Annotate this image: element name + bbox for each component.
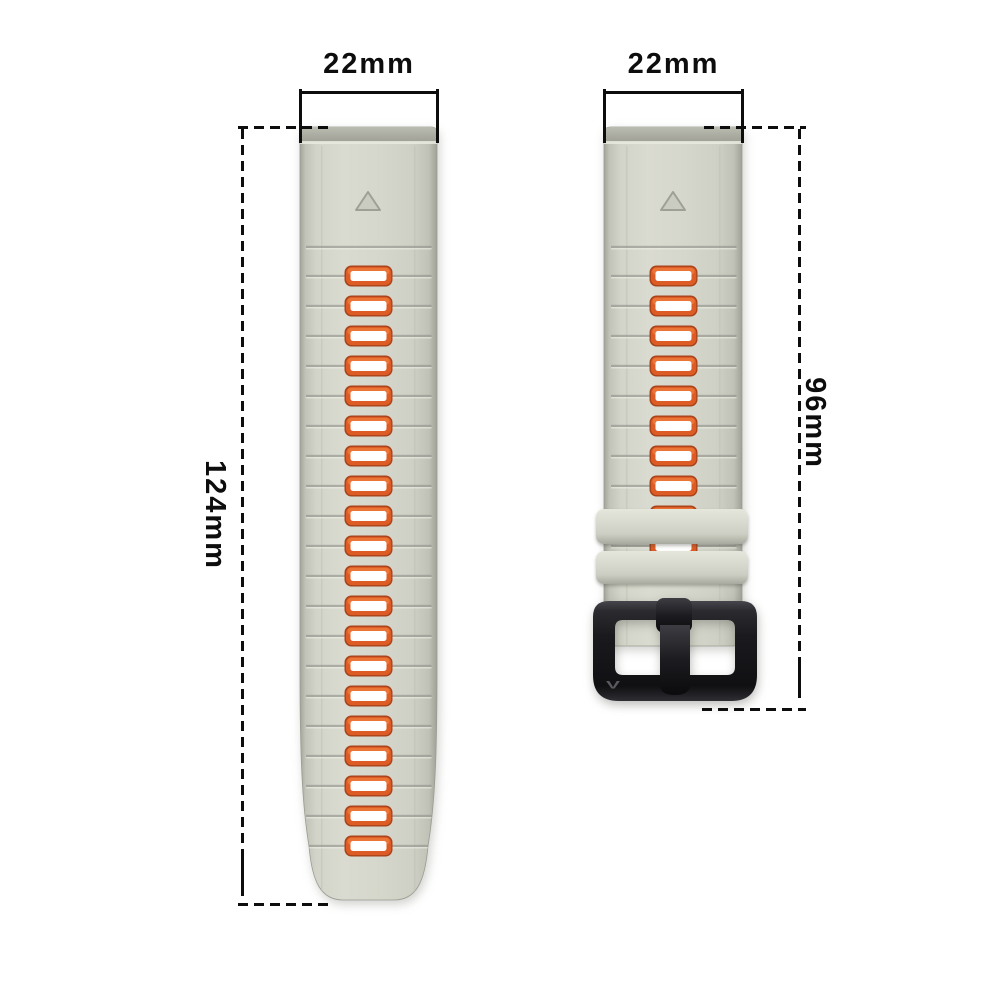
strap-groove-highlight [306, 248, 432, 249]
strap-keeper-loop-1 [596, 509, 748, 544]
left-strap-length-label: 124mm [199, 455, 231, 575]
right-strap-width-label: 22mm [604, 48, 743, 80]
strap-hole-opening [351, 301, 387, 311]
strap-hole-opening [351, 481, 387, 491]
left-width-dimension-line [300, 91, 439, 94]
strap-hole-opening [351, 601, 387, 611]
strap-hole-opening [351, 661, 387, 671]
strap-hole-opening [656, 421, 692, 431]
left-width-tick-left [299, 89, 302, 143]
right-length-dimension-line-end [798, 660, 801, 698]
right-width-tick-right [741, 89, 744, 143]
buckle-prong [660, 625, 690, 695]
strap-hole-opening [656, 301, 692, 311]
strap-groove [611, 246, 737, 248]
strap-hole-opening [656, 331, 692, 341]
strap-left-illustration [290, 120, 450, 910]
strap-hole-opening [351, 541, 387, 551]
strap-groove [306, 246, 432, 248]
left-width-tick-right [436, 89, 439, 143]
strap-hole-opening [351, 331, 387, 341]
left-length-bottom-tick [238, 903, 333, 906]
strap-hole-opening [351, 841, 387, 851]
strap-hole-opening [351, 811, 387, 821]
strap-hole-opening [656, 451, 692, 461]
left-length-top-tick [238, 126, 333, 129]
strap-hole-opening [656, 271, 692, 281]
strap-hole-opening [656, 481, 692, 491]
strap-hole-opening [656, 361, 692, 371]
strap-hole-opening [351, 391, 387, 401]
strap-keeper-loop-2 [596, 551, 748, 584]
strap-hole-opening [656, 391, 692, 401]
strap-hole-opening [351, 421, 387, 431]
right-width-dimension-line [604, 91, 744, 94]
strap-hole-opening [351, 751, 387, 761]
strap-hole-opening [351, 691, 387, 701]
strap-hole-opening [351, 571, 387, 581]
strap-hole-opening [351, 631, 387, 641]
product-dimension-diagram: 22mm 22mm 124mm 96mm [0, 0, 1000, 1000]
buckle-illustration [585, 595, 765, 710]
right-length-bottom-tick [702, 708, 806, 711]
strap-hole-opening [351, 511, 387, 521]
strap-hole-opening [351, 271, 387, 281]
left-length-dimension-line-end [241, 856, 244, 896]
left-strap-width-label: 22mm [300, 48, 438, 80]
right-length-top-tick [704, 126, 806, 129]
strap-hole-opening [351, 781, 387, 791]
left-length-dimension-line [241, 129, 244, 856]
strap-groove-highlight [611, 248, 737, 249]
strap-hole-opening [351, 451, 387, 461]
strap-hole-opening [351, 361, 387, 371]
right-width-tick-left [603, 89, 606, 143]
right-strap-length-label: 96mm [799, 373, 831, 473]
strap-hole-opening [351, 721, 387, 731]
buckle-logo-mark: V [606, 678, 620, 691]
